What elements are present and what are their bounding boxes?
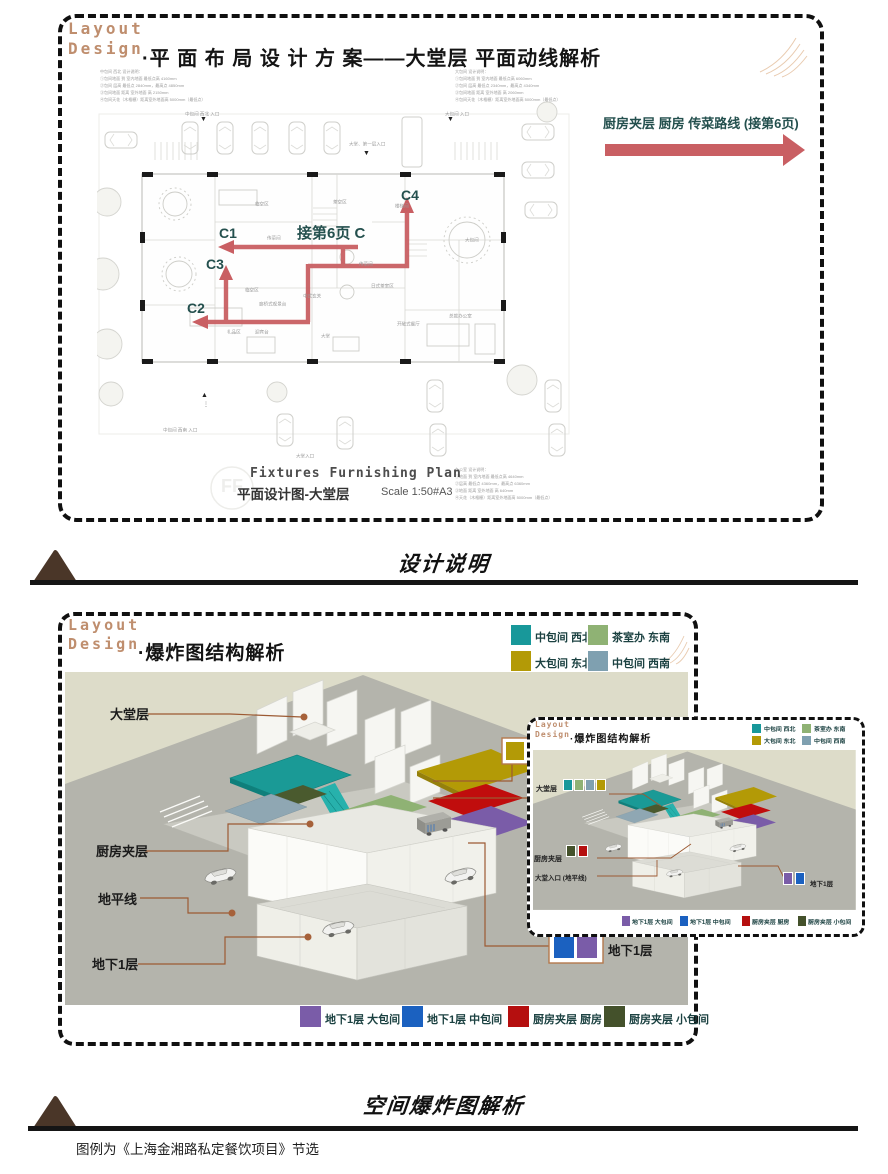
- legend-chip: [508, 1006, 529, 1027]
- marker-dots: ⋮: [203, 402, 209, 408]
- plan-footer-zh: 平面设计图-大堂层: [237, 483, 350, 503]
- legend-chip: [588, 651, 608, 671]
- gold-chip-box: [502, 738, 528, 764]
- inset-label-entry: 大堂入口 (地平线): [535, 872, 587, 882]
- inset-label-mezzanine: 厨房夹层: [534, 854, 562, 864]
- legend-chip: [622, 916, 630, 926]
- route-arrow-head-icon: [783, 134, 805, 166]
- spec-notes-northeast: 大包间 设计说明：①包间地面 到 室内地面 最低点高 6060mm ②包间 层高…: [455, 70, 625, 105]
- legend-chip: [680, 916, 688, 926]
- legend-chip: [802, 724, 811, 733]
- legend-label: 大包间 东北: [535, 655, 593, 671]
- legend-label: 大包间 东北: [764, 737, 795, 746]
- legend-chip: [798, 916, 806, 926]
- layer-label-mezzanine: 厨房夹层: [96, 841, 148, 860]
- north-marker-icon: ▼: [447, 116, 454, 123]
- legend-label: 中包间 西北: [764, 725, 795, 734]
- legend-label: 地下1层 大包间: [632, 918, 673, 927]
- legend-chip: [511, 651, 531, 671]
- legend-chip: [588, 625, 608, 645]
- legend-label: 厨房夹层 小包间: [629, 1011, 709, 1027]
- legend-chip: [596, 779, 606, 791]
- divider-line: [30, 580, 858, 585]
- legend-label: 厨房夹层 厨房: [533, 1011, 602, 1027]
- spec-notes-northwest: 中包间 西北 设计说明：①包间地面 到 室内地面 最低点高 4160mm ②包间…: [100, 70, 270, 105]
- feather-decoration-icon: [752, 26, 814, 84]
- route-label-c3: C3: [206, 256, 224, 272]
- divider-title-explode: 空间爆炸图解析: [0, 1090, 888, 1120]
- legend-chip: [578, 845, 588, 857]
- entry-label-s: 大堂入口: [296, 452, 314, 459]
- legend-label: 地下1层 大包间: [325, 1011, 400, 1027]
- floor-plan-panel: Layout Design ·平 面 布 局 设 计 方 案——大堂层 平面动线…: [58, 14, 824, 522]
- inset-label-b1: 地下1层: [810, 878, 833, 888]
- floor-plan-svg: [97, 62, 622, 520]
- divider-line: [28, 1126, 858, 1131]
- room-label: 茶空区: [333, 198, 347, 205]
- plan-footer-en: Fixtures Furnishing Plan: [250, 466, 462, 481]
- floor-plan-drawing: C1 接第6页 C C4 C3 C2 中包间 西北 设计说明：①包间地面 到 室…: [97, 62, 622, 520]
- room-label: 传菜间: [359, 260, 373, 267]
- legend-label: 厨房夹层 厨房: [752, 918, 789, 927]
- room-label: 传菜间: [267, 234, 281, 241]
- legend-label: 中包间 西北: [535, 629, 593, 645]
- legend-label: 中包间 西南: [814, 737, 845, 746]
- north-marker-icon: ▼: [200, 116, 207, 123]
- room-label: 大堂: [321, 332, 330, 339]
- legend-label: 地下1层 中包间: [690, 918, 731, 927]
- route-label-mid: 接第6页 C: [297, 222, 365, 243]
- spec-notes-southeast: 办公室 设计说明：①地面 到 室内地面 最低点高 4640mm ②层高 最低点 …: [455, 468, 612, 503]
- room-label: 临空区: [245, 286, 259, 293]
- legend-chip: [511, 625, 531, 645]
- brand-design: Design: [68, 41, 144, 57]
- brand-design: Design: [68, 637, 140, 652]
- brand-layout: Layout: [68, 618, 140, 633]
- legend-chip: [783, 872, 793, 885]
- room-label: 迎宾台: [255, 328, 269, 335]
- divider-title-design: 设计说明: [0, 548, 888, 578]
- inset-label-hall: 大堂层: [536, 784, 557, 794]
- entry-marker-icon: ▼: [363, 150, 370, 157]
- legend-chip: [795, 872, 805, 885]
- legend-chip: [585, 779, 595, 791]
- room-label: 楼梯间: [395, 202, 409, 209]
- room-label: 临空区: [255, 200, 269, 207]
- layer-label-b1: 地下1层: [92, 954, 138, 973]
- room-label: 开敞式餐厅: [397, 320, 420, 327]
- legend-chip: [802, 736, 811, 745]
- plan-footer-scale: Scale 1:50#A3: [381, 486, 453, 498]
- legend-chip: [604, 1006, 625, 1027]
- exploded-title: ·爆炸图结构解析: [138, 638, 285, 665]
- legend-chip: [574, 779, 584, 791]
- legend-chip: [742, 916, 750, 926]
- brand-layout: Layout: [68, 21, 144, 37]
- legend-label: 中包间 西南: [612, 655, 670, 671]
- inset-diagram-svg: [533, 750, 856, 910]
- route-label-c4: C4: [401, 187, 419, 203]
- legend-chip: [752, 736, 761, 745]
- inset-title: ·爆炸图结构解析: [570, 730, 651, 745]
- inset-brand-layout: Layout: [535, 721, 570, 729]
- legend-label: 地下1层 中包间: [427, 1011, 502, 1027]
- entry-label-top: 大堂、第一层入口: [349, 140, 385, 147]
- legend-chip: [752, 724, 761, 733]
- source-caption: 图例为《上海金湘路私定餐饮项目》节选: [76, 1138, 319, 1158]
- legend-label: 厨房夹层 小包间: [808, 918, 851, 927]
- inset-brand-design: Design: [535, 731, 570, 739]
- route-arrow-bar: [605, 144, 783, 156]
- legend-chip: [563, 779, 573, 791]
- legend-chip: [566, 845, 576, 857]
- route-label-c2: C2: [187, 300, 205, 316]
- legend-label: 茶室办 东南: [612, 629, 670, 645]
- b1-tag: 地下1层: [608, 940, 652, 959]
- south-marker-icon: ▲: [201, 392, 208, 399]
- legend-label: 茶室办 东南: [814, 725, 845, 734]
- legend-chip: [300, 1006, 321, 1027]
- room-label: 总裁办公室: [449, 312, 472, 319]
- room-label: 礼品区: [227, 328, 241, 335]
- legend-chip: [402, 1006, 423, 1027]
- room-label: 大包间: [465, 236, 479, 243]
- route-label-c1: C1: [219, 225, 237, 241]
- inset-thumbnail-panel: Layout Design ·爆炸图结构解析 中包间 西北 茶室办 东南 大包间…: [527, 717, 865, 937]
- room-label: 中式玄关: [303, 292, 321, 299]
- route-note: 厨房夹层 厨房 传菜路线 (接第6页): [603, 113, 799, 132]
- entry-label-sw: 中包间 西南 入口: [163, 426, 197, 433]
- layer-label-hall: 大堂层: [110, 704, 149, 723]
- room-label: 廊桥式观景台: [259, 300, 286, 307]
- room-label: 日式茶室区: [371, 282, 394, 289]
- layer-label-ground: 地平线: [98, 889, 137, 908]
- page: Layout Design ·平 面 布 局 设 计 方 案——大堂层 平面动线…: [0, 0, 888, 1174]
